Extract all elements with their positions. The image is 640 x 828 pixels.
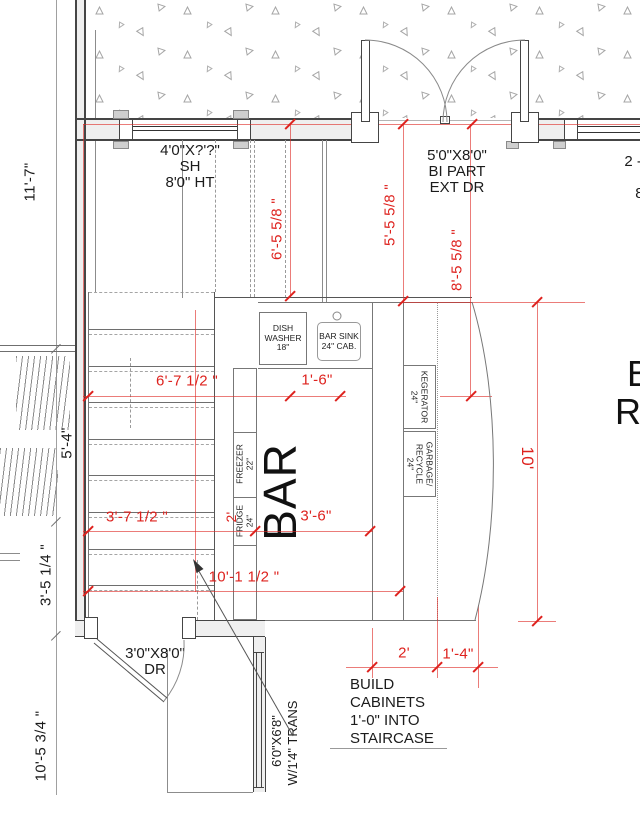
room-label-clipped-line1: B [627, 353, 640, 395]
left-room-wall [0, 345, 77, 352]
stair-dashed-line [197, 560, 198, 620]
cabinet-divider [233, 545, 257, 546]
window-glazing [133, 126, 237, 127]
bipart-door-label: 5'0"X8'0" BI PART EXT DR [427, 148, 487, 196]
pilaster [113, 141, 129, 149]
wall-fill [539, 120, 565, 139]
counter-overhang-dotted [437, 302, 438, 620]
window-top-left-label: 4'0"X?'?" SH 8'0" HT [160, 143, 220, 191]
garbage-label: GARBAGE/ RECYCLE 24" [405, 442, 434, 486]
window-frame [119, 119, 133, 140]
note-underline [330, 748, 447, 749]
room-label-clipped-line2: R [615, 391, 640, 433]
door-jamb [182, 617, 196, 639]
red-ext-line [372, 628, 373, 678]
build-cabinets-note: BUILD CABINETS 1'-0" INTO STAIRCASE [350, 676, 434, 748]
window-glazing [578, 126, 640, 127]
freezer-label: FREEZER 22" [236, 444, 255, 484]
stair-tread-dashed [89, 292, 214, 293]
shelf-line [326, 140, 327, 302]
window-frame-cap [254, 787, 264, 788]
dishwasher-box: DISH WASHER 18" [259, 312, 307, 365]
window-frame [564, 119, 578, 140]
shelf-dashed-line [254, 140, 255, 297]
red-dim-5-5-5-8-line [403, 124, 404, 303]
window-frame [237, 119, 251, 140]
counter-back-edge [215, 297, 472, 298]
left-room-line [0, 553, 20, 554]
bottom-window-size-label: 6'0"X6'8" [269, 715, 285, 767]
window-glazing [133, 130, 237, 131]
shelf-dashed-line [250, 140, 251, 297]
dishwasher-label: DISH WASHER 18" [265, 324, 302, 353]
window-top-right-label: 2 - 2'0 S 8'0 [624, 154, 640, 202]
red-dim-stub [440, 396, 492, 397]
dim-3-6: 3'-6" [300, 508, 331, 525]
dim-8-5-5-8: 8'-5 5/8 " [449, 229, 466, 291]
counter-bottom-edge [233, 620, 476, 621]
floor-plan: DISH WASHER 18" BAR SINK 24" CAB. KEGERA… [0, 0, 640, 828]
bar-label: BAR [253, 443, 307, 541]
wall-fill [86, 120, 120, 139]
dim-5-4: 5'-4" [59, 427, 76, 458]
door-leaf-right [520, 40, 529, 122]
window-glazing [578, 132, 640, 133]
pilaster [553, 141, 566, 149]
red-ext-line [478, 605, 479, 688]
bottom-door-label: 3'0"X8'0" DR [125, 646, 185, 678]
left-wall-inner-line [95, 30, 96, 292]
kegerator-label: KEGERATOR 24" [410, 371, 429, 424]
left-room-line [0, 560, 20, 561]
door-stop [440, 116, 450, 124]
dim-10-1-1-2: 10'-1 1/2 " [209, 569, 280, 586]
red-ext-line [83, 124, 84, 594]
red-dim-6-5-5-8-line [290, 124, 291, 297]
stair-hatch-upper [16, 356, 70, 430]
red-ext-line [195, 310, 196, 592]
bottom-window-trans-label: W/1'4" TRANS [285, 701, 301, 786]
dim-3-7-1-2: 3'-7 1/2 " [106, 509, 168, 526]
pilaster [233, 110, 249, 119]
dim-6-7-1-2: 6'-7 1/2 " [156, 373, 218, 390]
left-wall [75, 0, 86, 637]
shelf-line [322, 140, 323, 302]
porch-edge [167, 792, 253, 793]
red-dim-line-lower-run [83, 531, 373, 532]
bar-sink-label: BAR SINK 24" CAB. [319, 332, 359, 351]
dim-1-6: 1'-6" [301, 372, 332, 389]
bottom-wall [196, 620, 265, 637]
dim-6-5-5-8: 6'-5 5/8 " [269, 198, 286, 260]
dim-10ft: 10' [517, 446, 537, 469]
stair-hatch-lower [0, 448, 58, 516]
lower-right-wall [253, 637, 266, 792]
red-dim-line-upper-run [83, 396, 346, 397]
dim-11-7: 11'-7" [22, 163, 39, 202]
dim-2ft-cab: 2' [398, 645, 410, 662]
red-dim-10ft-line [537, 302, 538, 621]
cabinet-divider [233, 432, 257, 433]
dim-3-5-1-4: 3'-5 1/4 " [38, 544, 55, 606]
door-leaf-left [361, 40, 370, 122]
window-frame-cap [254, 652, 264, 653]
counter-front-edge [258, 368, 373, 369]
dim-5-5-5-8: 5'-5 5/8 " [382, 184, 399, 246]
east-cabinet-line [372, 302, 373, 620]
dim-2ft-fridge: 2' [223, 511, 239, 522]
red-dim-line [403, 302, 585, 303]
dim-10-5-3-4: 10'-5 3/4 " [33, 711, 50, 782]
bar-sink-box: BAR SINK 24" CAB. [317, 322, 361, 361]
window-glazing-vertical [256, 652, 257, 788]
door-jamb [84, 617, 98, 639]
window-glazing-vertical [261, 652, 262, 788]
red-dim-line-overall [83, 591, 403, 592]
dim-1-4: 1'-4" [442, 646, 473, 663]
pilaster [233, 141, 249, 149]
wall-fill [250, 120, 351, 139]
pilaster [113, 110, 129, 119]
